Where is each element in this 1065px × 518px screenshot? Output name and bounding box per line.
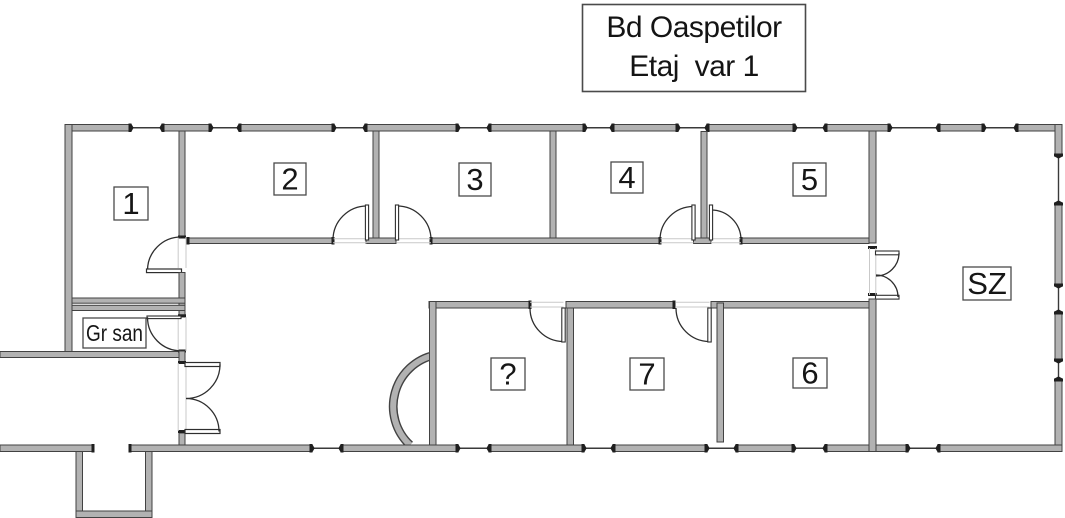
svg-text:Bd Oaspetilor: Bd Oaspetilor	[606, 11, 782, 44]
svg-text:SZ: SZ	[967, 266, 1007, 301]
svg-text:5: 5	[801, 162, 818, 197]
svg-text:7: 7	[638, 357, 655, 392]
svg-text:1: 1	[122, 186, 139, 221]
svg-text:3: 3	[466, 162, 483, 197]
svg-text:4: 4	[618, 160, 635, 195]
svg-text:2: 2	[281, 162, 298, 197]
svg-text:Etaj var 1: Etaj var 1	[629, 50, 759, 83]
svg-text:Gr san: Gr san	[86, 320, 143, 346]
svg-text:6: 6	[801, 356, 818, 391]
svg-text:?: ?	[499, 357, 516, 392]
